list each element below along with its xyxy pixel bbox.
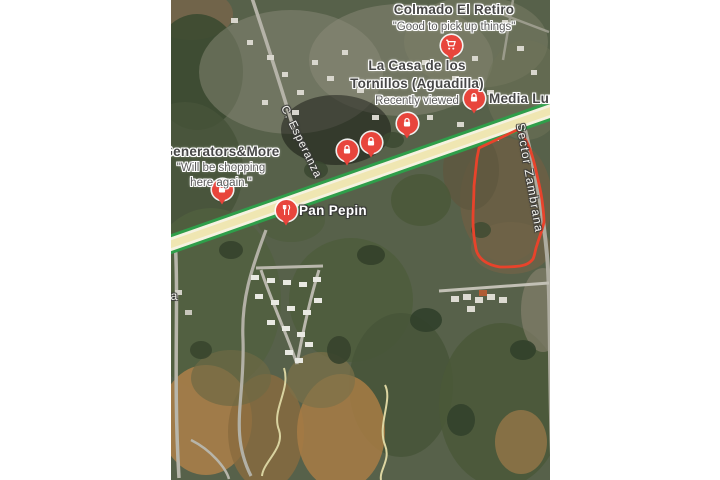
screenshot-canvas: C. Esperanza Sector Zambrana la Colmado … <box>0 0 720 480</box>
poi-label-media-luna[interactable]: Media Luna <box>489 91 550 106</box>
poi-review-colmado: "Good to pick up things" <box>393 21 516 33</box>
poi-label-generators-and-more[interactable]: Generators&More <box>171 144 280 159</box>
poi-pin-shopping-cart[interactable] <box>441 35 462 56</box>
poi-label-pan-pepin[interactable]: Pan Pepin <box>299 203 367 218</box>
poi-label-la-casa-de-los-tornillos[interactable]: La Casa de los Tornillos (Aguadilla) <box>338 57 496 93</box>
lock-icon <box>468 92 480 104</box>
poi-pin-lock-2[interactable] <box>361 132 382 153</box>
poi-label-colmado-el-retiro[interactable]: Colmado El Retiro <box>394 2 514 17</box>
poi-pin-lock-1[interactable] <box>397 113 418 134</box>
road-label-clipped-edge: la <box>171 289 177 303</box>
lock-icon <box>365 136 377 148</box>
lock-icon <box>341 144 353 156</box>
poi-pin-lock-3[interactable] <box>337 140 358 161</box>
satellite-map[interactable]: C. Esperanza Sector Zambrana la Colmado … <box>171 0 550 480</box>
poi-review-generators: "Will be shopping here again." <box>171 161 277 191</box>
restaurant-icon <box>280 204 292 216</box>
shopping-cart-icon <box>445 39 457 51</box>
poi-status-recently-viewed: Recently viewed <box>375 95 459 107</box>
poi-pin-restaurant-pan-pepin[interactable] <box>276 200 297 221</box>
lock-icon <box>401 117 413 129</box>
